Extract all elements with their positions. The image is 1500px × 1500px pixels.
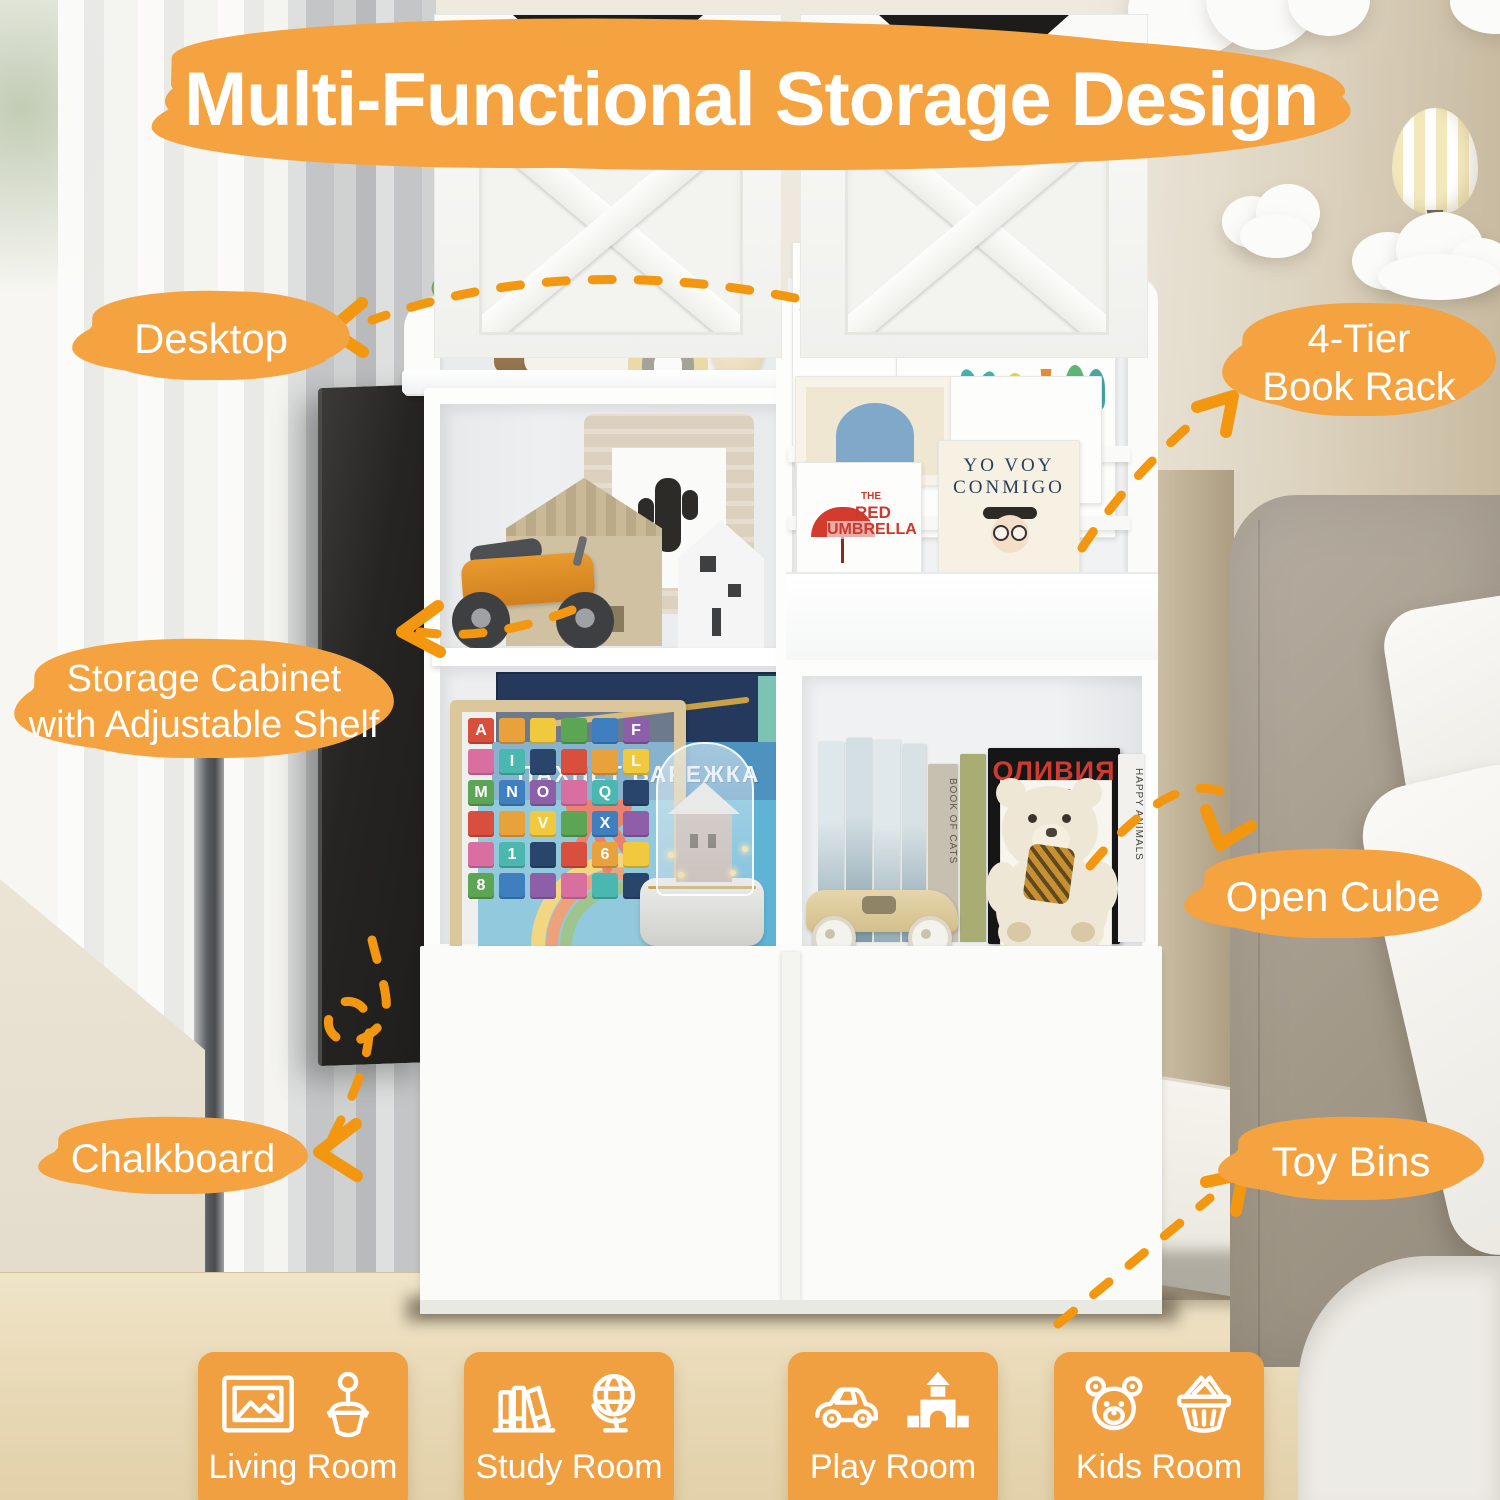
- callout-toy-bins-label: Toy Bins: [1272, 1138, 1431, 1186]
- figurine-window: [700, 556, 716, 572]
- shelf-plinth: [420, 1300, 1162, 1314]
- alphabet-block: M: [468, 780, 494, 806]
- alphabet-blocks-grid: AFILMNOQVX168: [468, 718, 644, 899]
- alphabet-block: [623, 842, 649, 868]
- alphabet-block: [592, 873, 618, 899]
- callout-chalkboard: Chalkboard: [52, 1124, 294, 1194]
- room-tile-label: Living Room: [209, 1448, 398, 1487]
- alphabet-block: [468, 842, 494, 868]
- callout-book-rack: 4-Tier Book Rack: [1236, 310, 1482, 416]
- tile-icons: [220, 1366, 386, 1442]
- callout-cabinet-line2: with Adjustable Shelf: [29, 702, 380, 748]
- cloud-decor: [1378, 254, 1500, 300]
- picture-frame-icon: [220, 1366, 296, 1442]
- figurine-window: [728, 584, 741, 597]
- alphabet-block: [530, 718, 556, 744]
- cactus-arm: [682, 490, 698, 520]
- alphabet-block: [468, 811, 494, 837]
- teddy-arm: [986, 862, 1020, 914]
- teddy-arm: [1084, 862, 1118, 914]
- umbrella-handle-art: [841, 537, 844, 563]
- teddy-bear-icon: [1076, 1366, 1152, 1442]
- room-tile-label: Kids Room: [1076, 1448, 1242, 1487]
- glass-dome: [656, 742, 754, 896]
- room-tile-play: Play Room: [788, 1352, 998, 1500]
- yo-voy-title-line1: YO VOY: [939, 455, 1079, 477]
- red-umbrella-book: THE RED UMBRELLA: [796, 462, 922, 582]
- product-infographic-scene: ПАХНЕТ ВАРЕЖКА AFILMNOQVX168 Mitford at …: [0, 0, 1500, 1500]
- globe-icon: [576, 1366, 652, 1442]
- alphabet-block: [623, 780, 649, 806]
- alphabet-block: 1: [499, 842, 525, 868]
- callout-open-cube: Open Cube: [1198, 856, 1468, 938]
- alphabet-block: [499, 873, 525, 899]
- toy-car-hub: [825, 929, 835, 939]
- alphabet-block: V: [530, 811, 556, 837]
- callout-open-cube-label: Open Cube: [1226, 873, 1441, 921]
- alphabet-block: [530, 842, 556, 868]
- toy-car-seat: [862, 896, 896, 914]
- alphabet-block: L: [623, 749, 649, 775]
- tile-icons: [1076, 1366, 1242, 1442]
- alphabet-block: [561, 749, 587, 775]
- alphabet-block: [468, 749, 494, 775]
- callout-storage-cabinet: Storage Cabinet with Adjustable Shelf: [28, 646, 380, 758]
- room-tile-living: Living Room: [198, 1352, 408, 1500]
- potted-plant-icon: [310, 1366, 386, 1442]
- spine-title: HAPPY ANIMALS: [1118, 768, 1144, 861]
- room-tile-kids: Kids Room: [1054, 1352, 1264, 1500]
- red-umbrella-red: RED: [855, 503, 891, 523]
- teddy-foot-pad: [1007, 922, 1031, 942]
- callout-book-rack-line1: 4-Tier: [1308, 315, 1411, 363]
- basket-icon: [1166, 1366, 1242, 1442]
- alphabet-block: I: [499, 749, 525, 775]
- alphabet-block: [530, 749, 556, 775]
- toy-car-icon: [810, 1366, 886, 1442]
- cloud-decor: [1240, 214, 1312, 258]
- page-title: Multi-Functional Storage Design: [184, 56, 1318, 143]
- character-glasses-art: [1011, 525, 1027, 541]
- room-tile-label: Play Room: [810, 1448, 976, 1487]
- alphabet-block: [561, 780, 587, 806]
- spine-title: BOOK OF CATS: [928, 778, 958, 864]
- alphabet-block: [561, 873, 587, 899]
- character-glasses-art: [993, 525, 1009, 541]
- title-banner: Multi-Functional Storage Design: [165, 28, 1337, 170]
- alphabet-block: F: [623, 718, 649, 744]
- headboard-seam: [1258, 520, 1260, 1360]
- alphabet-block: [561, 811, 587, 837]
- yo-voy-title-line2: CONMIGO: [939, 477, 1079, 499]
- callout-chalkboard-label: Chalkboard: [71, 1137, 276, 1182]
- teddy-scarf: [1022, 843, 1075, 905]
- alphabet-block: [530, 873, 556, 899]
- figurine-door: [712, 608, 721, 636]
- tile-icons: [810, 1366, 976, 1442]
- yo-voy-conmigo-book: YO VOY CONMIGO: [938, 440, 1080, 582]
- red-umbrella-word: UMBRELLA: [827, 521, 917, 539]
- toy-atv-wheel: [452, 592, 510, 650]
- alphabet-block: A: [468, 718, 494, 744]
- alphabet-block: 8: [468, 873, 494, 899]
- alphabet-block: [592, 718, 618, 744]
- teddy-nose: [1046, 828, 1057, 837]
- castle-blocks-icon: [900, 1366, 976, 1442]
- alphabet-block: [499, 811, 525, 837]
- toy-car-hub: [921, 929, 931, 939]
- teddy-foot-pad: [1071, 922, 1095, 942]
- alphabet-block: [592, 749, 618, 775]
- room-tile-study: Study Room: [464, 1352, 674, 1500]
- callout-desktop: Desktop: [86, 298, 336, 380]
- alphabet-block: Q: [592, 780, 618, 806]
- red-umbrella-the: THE: [861, 491, 881, 502]
- room-tile-label: Study Room: [475, 1448, 662, 1487]
- alphabet-block: X: [592, 811, 618, 837]
- toy-atv-wheel: [556, 592, 614, 650]
- alphabet-block: O: [530, 780, 556, 806]
- callout-cabinet-line1: Storage Cabinet: [67, 656, 342, 702]
- bins-divider: [782, 952, 800, 1310]
- callout-book-rack-line2: Book Rack: [1262, 363, 1455, 411]
- teddy-eye: [1028, 814, 1037, 823]
- alphabet-block: [561, 842, 587, 868]
- alphabet-block: 6: [592, 842, 618, 868]
- adjustable-shelf: [432, 648, 784, 666]
- teddy-eye: [1062, 814, 1071, 823]
- tile-icons: [486, 1366, 652, 1442]
- alphabet-block: [561, 718, 587, 744]
- alphabet-block: [499, 718, 525, 744]
- book-spine-animals: HAPPY ANIMALS: [1118, 754, 1144, 942]
- book-rack-front-panel: [786, 572, 1158, 666]
- book-spine: [960, 754, 986, 942]
- callout-desktop-label: Desktop: [134, 315, 288, 363]
- books-icon: [486, 1366, 562, 1442]
- callout-toy-bins: Toy Bins: [1232, 1124, 1470, 1200]
- alphabet-block: [623, 811, 649, 837]
- arch-dome-art: [836, 403, 914, 469]
- alphabet-block: N: [499, 780, 525, 806]
